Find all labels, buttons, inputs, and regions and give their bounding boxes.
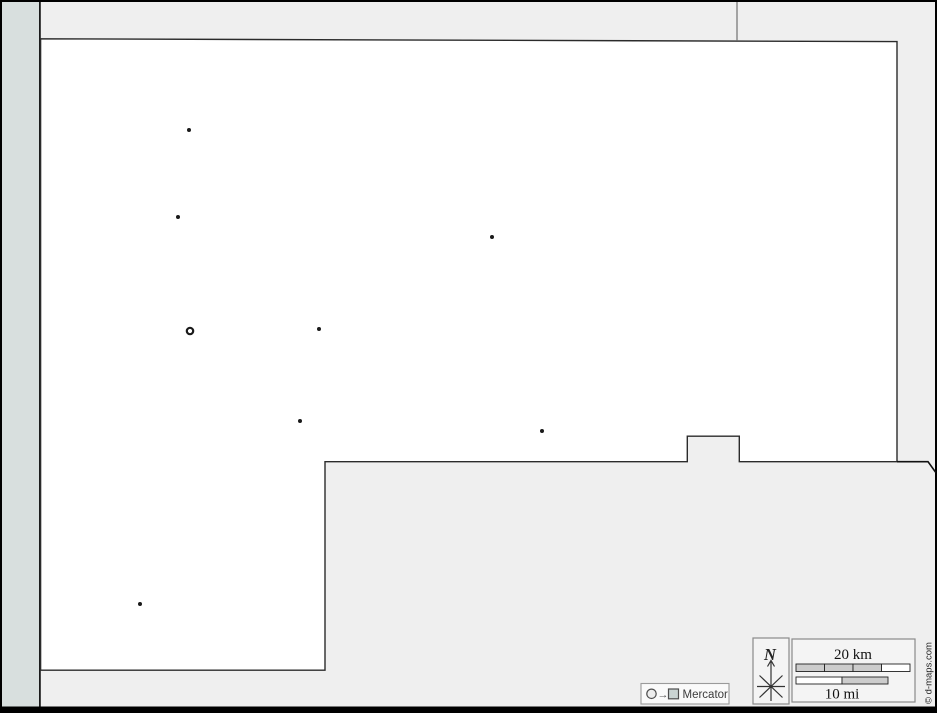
circle-icon — [647, 689, 656, 698]
scale-km-label: 20 km — [834, 647, 872, 663]
capital-marker — [187, 328, 193, 334]
projection-label: Mercator — [683, 689, 729, 701]
city-marker — [176, 215, 180, 219]
projection-legend: → Mercator — [641, 684, 729, 705]
scale-bar-mi — [796, 677, 888, 684]
city-marker — [138, 602, 142, 606]
map-canvas: → Mercator N 20 km 10 mi — [0, 0, 937, 713]
scale-mi-label: 10 mi — [825, 687, 860, 703]
city-marker — [540, 429, 544, 433]
city-marker — [298, 419, 302, 423]
scale-box: 20 km 10 mi — [792, 639, 915, 703]
north-compass: N — [753, 638, 789, 704]
city-marker — [490, 235, 494, 239]
arrow-icon: → — [658, 689, 669, 701]
city-marker — [187, 128, 191, 132]
scale-bar-km — [796, 664, 910, 672]
city-marker — [317, 327, 321, 331]
copyright-text: © d-maps.com — [924, 642, 935, 704]
sea-strip — [2, 2, 40, 707]
square-icon — [669, 689, 679, 699]
